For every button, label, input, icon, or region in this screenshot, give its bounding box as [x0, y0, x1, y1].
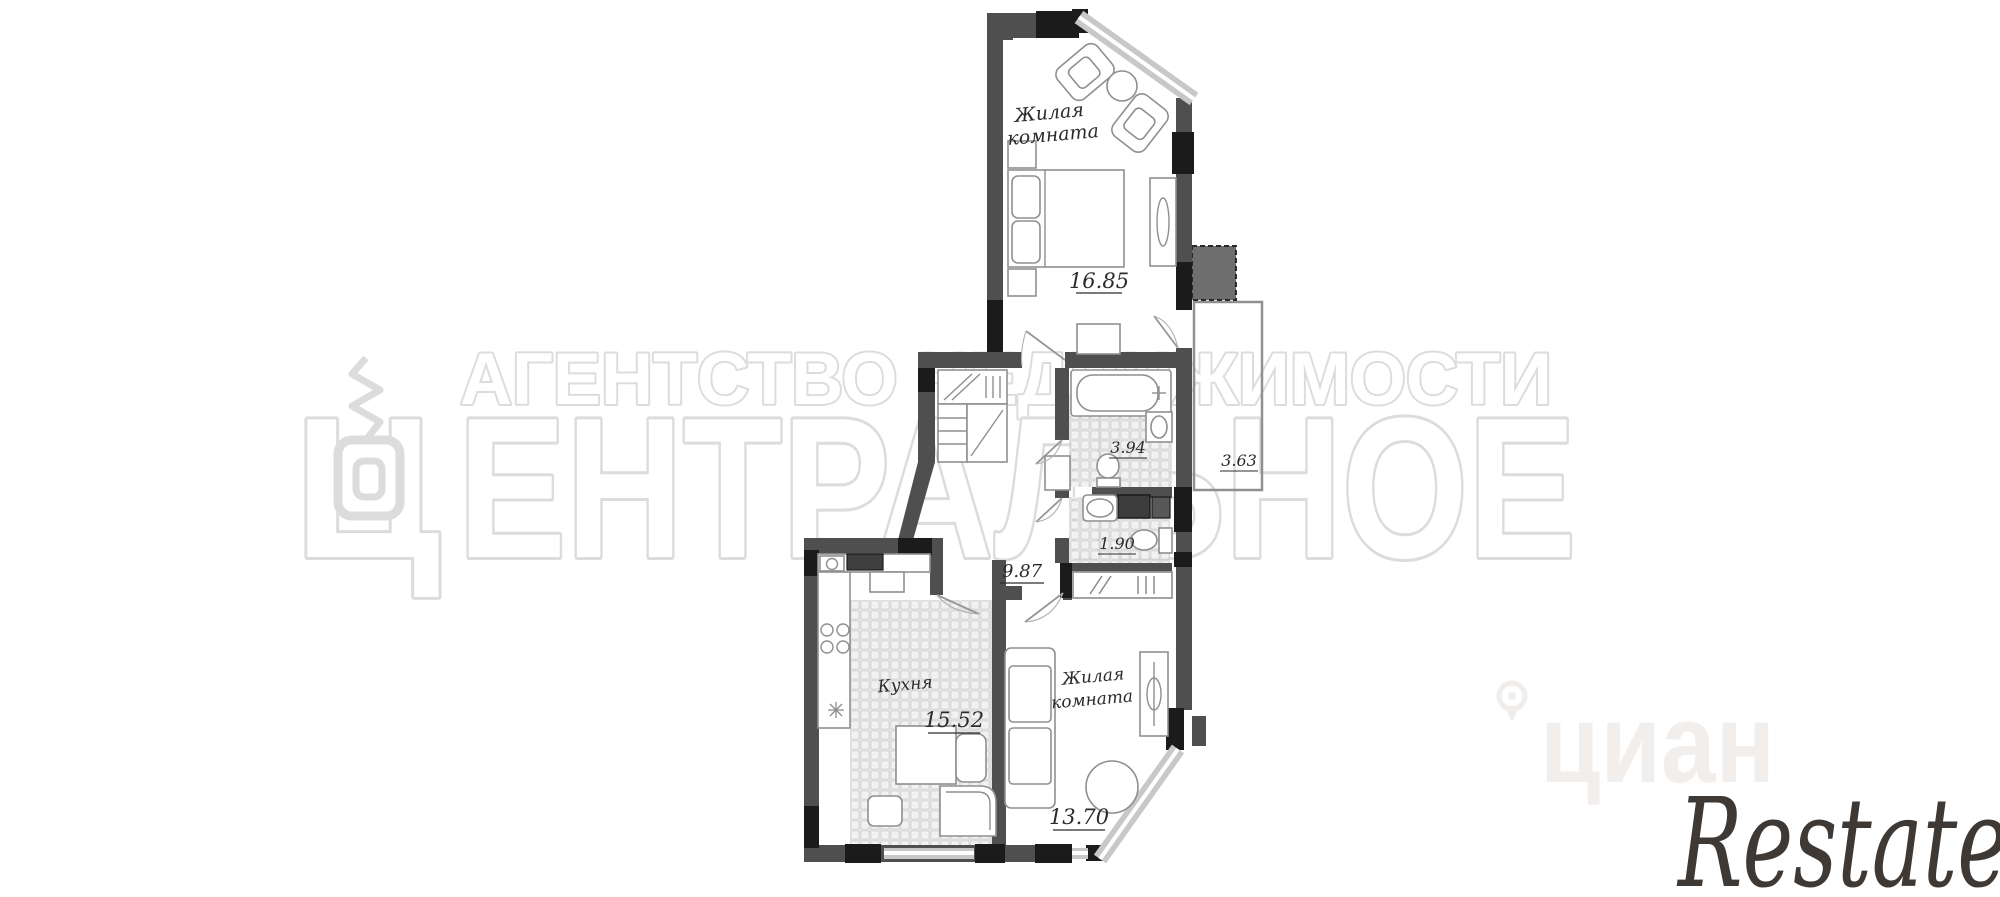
kitchen-side-counter: [818, 572, 850, 728]
dishwasher: [870, 572, 904, 592]
pillow: [1012, 176, 1040, 218]
fridge-snowflake-icon: [828, 702, 844, 718]
restate-logo: Restate: [1677, 772, 2000, 897]
kitchen-table: [896, 726, 956, 784]
hall-cabinet: [1045, 456, 1070, 490]
coffee-table: [1107, 71, 1137, 101]
boiler: [1152, 497, 1170, 518]
tv-cabinet: [1077, 324, 1120, 354]
shelf-unit: [938, 404, 967, 462]
wardrobe: [938, 370, 1007, 404]
chair: [868, 796, 902, 826]
floorplan-page: АГЕНТСТВО НЕДВИЖИМОСТИ Ц ЕНТРАЛЬНОЕ циан: [0, 0, 2000, 897]
wc-toilet: [1131, 530, 1157, 550]
bedroom-area-label: 16.85: [1069, 269, 1129, 293]
kitchen-area-label: 15.52: [924, 708, 984, 732]
hallway-area-label: 9.87: [1002, 561, 1043, 582]
restate-logo-text: Restate: [1677, 772, 2000, 897]
chair: [956, 734, 986, 782]
living-area-label: 13.70: [1049, 805, 1109, 829]
pillow: [1012, 221, 1040, 263]
floorplan-canvas: АГЕНТСТВО НЕДВИЖИМОСТИ Ц ЕНТРАЛЬНОЕ циан: [0, 0, 2000, 897]
entry-hatch: [1073, 572, 1172, 598]
washing-machine: [1118, 495, 1150, 518]
dresser: [1150, 178, 1176, 266]
bathroom-area-label: 3.94: [1110, 438, 1146, 457]
wc-area-label: 1.90: [1099, 534, 1135, 553]
balcony-area-label: 3.63: [1221, 451, 1257, 470]
nightstand: [1008, 269, 1036, 296]
stove: [847, 554, 883, 570]
corner-bench: [940, 786, 996, 836]
sofa-cushion: [1009, 728, 1051, 784]
sofa-cushion: [1009, 666, 1051, 722]
ac-unit: [1192, 246, 1236, 300]
